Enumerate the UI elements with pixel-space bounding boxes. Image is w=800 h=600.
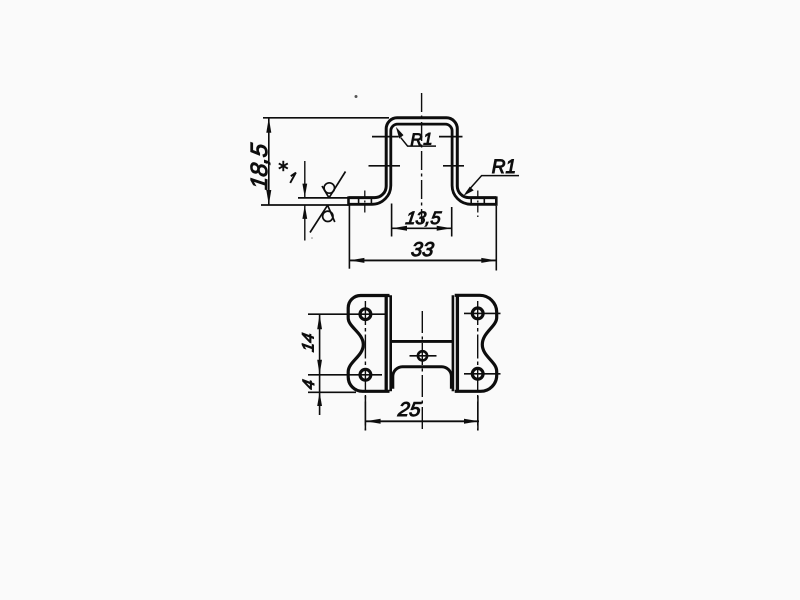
svg-text:R: R [411, 131, 423, 149]
svg-text:25: 25 [396, 399, 423, 421]
svg-text:33: 33 [410, 239, 435, 261]
svg-text:R1: R1 [492, 157, 516, 178]
svg-text:18,5: 18,5 [247, 141, 273, 191]
svg-text:4: 4 [299, 378, 318, 391]
svg-text:14: 14 [299, 332, 318, 354]
svg-text:13,5: 13,5 [404, 208, 443, 228]
svg-text:1: 1 [423, 130, 432, 148]
